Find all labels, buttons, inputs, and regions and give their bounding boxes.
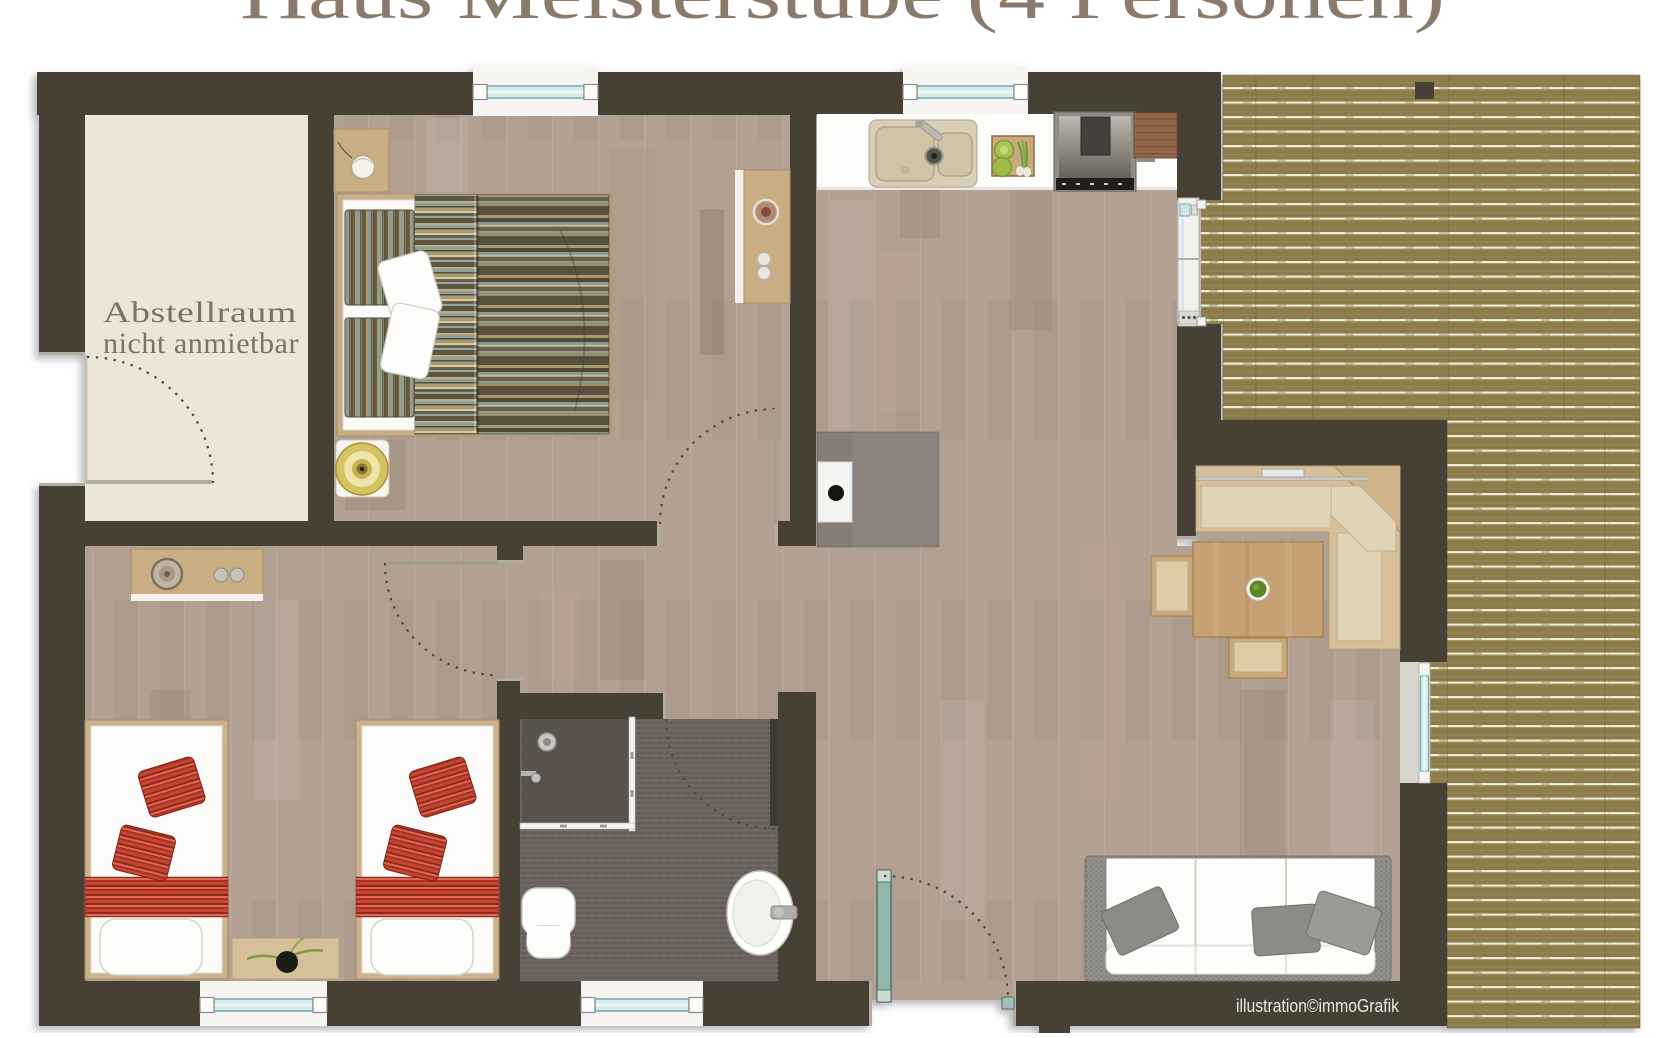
svg-text:illustration©immoGrafik: illustration©immoGrafik [1236,995,1400,1016]
svg-text:Haus Meisterstube (4 Personen): Haus Meisterstube (4 Personen) [240,0,1445,34]
svg-text:nicht anmietbar: nicht anmietbar [103,327,299,360]
svg-text:Abstellraum: Abstellraum [103,296,297,329]
